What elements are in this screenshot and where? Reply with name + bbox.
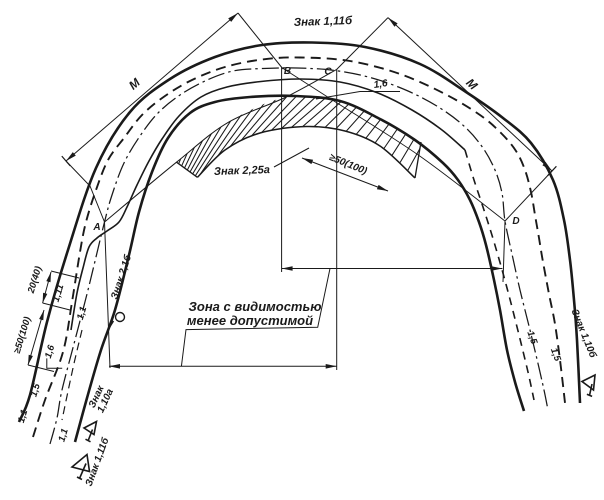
svg-text:Зона с видимостью: Зона с видимостью xyxy=(189,299,322,314)
svg-text:Знак 1,11б: Знак 1,11б xyxy=(294,15,354,29)
svg-text:1,5: 1,5 xyxy=(524,330,539,347)
svg-text:В: В xyxy=(284,66,291,77)
svg-text:20(40): 20(40) xyxy=(26,265,45,295)
svg-text:Знак 1,10б: Знак 1,10б xyxy=(569,307,600,360)
svg-text:1,1: 1,1 xyxy=(75,305,89,321)
svg-text:менее допустимой: менее допустимой xyxy=(187,313,313,328)
svg-text:≥50(100): ≥50(100) xyxy=(12,316,34,356)
svg-text:≥50(100): ≥50(100) xyxy=(327,152,369,177)
svg-text:1,6: 1,6 xyxy=(43,343,58,360)
svg-text:D: D xyxy=(512,216,519,227)
svg-text:М: М xyxy=(126,75,143,93)
svg-text:Знак 1,11б: Знак 1,11б xyxy=(83,435,112,488)
svg-text:1,6: 1,6 xyxy=(373,78,389,91)
svg-text:1,1: 1,1 xyxy=(16,408,30,424)
svg-text:Знак 2,25а: Знак 2,25а xyxy=(214,164,270,178)
svg-text:1,5: 1,5 xyxy=(28,382,43,399)
svg-text:1,5: 1,5 xyxy=(548,347,563,364)
svg-text:А: А xyxy=(92,222,100,233)
svg-text:Знак 2,1б: Знак 2,1б xyxy=(108,253,134,301)
svg-text:1,11: 1,11 xyxy=(51,283,67,303)
svg-text:С: С xyxy=(324,67,332,78)
svg-text:1,1: 1,1 xyxy=(56,427,70,443)
